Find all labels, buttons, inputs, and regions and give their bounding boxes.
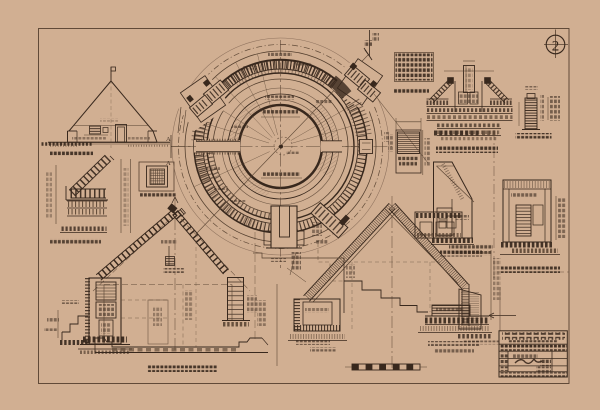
- svg-text:A: A: [166, 136, 171, 143]
- svg-text:A: A: [166, 160, 171, 167]
- svg-text:2: 2: [552, 39, 560, 55]
